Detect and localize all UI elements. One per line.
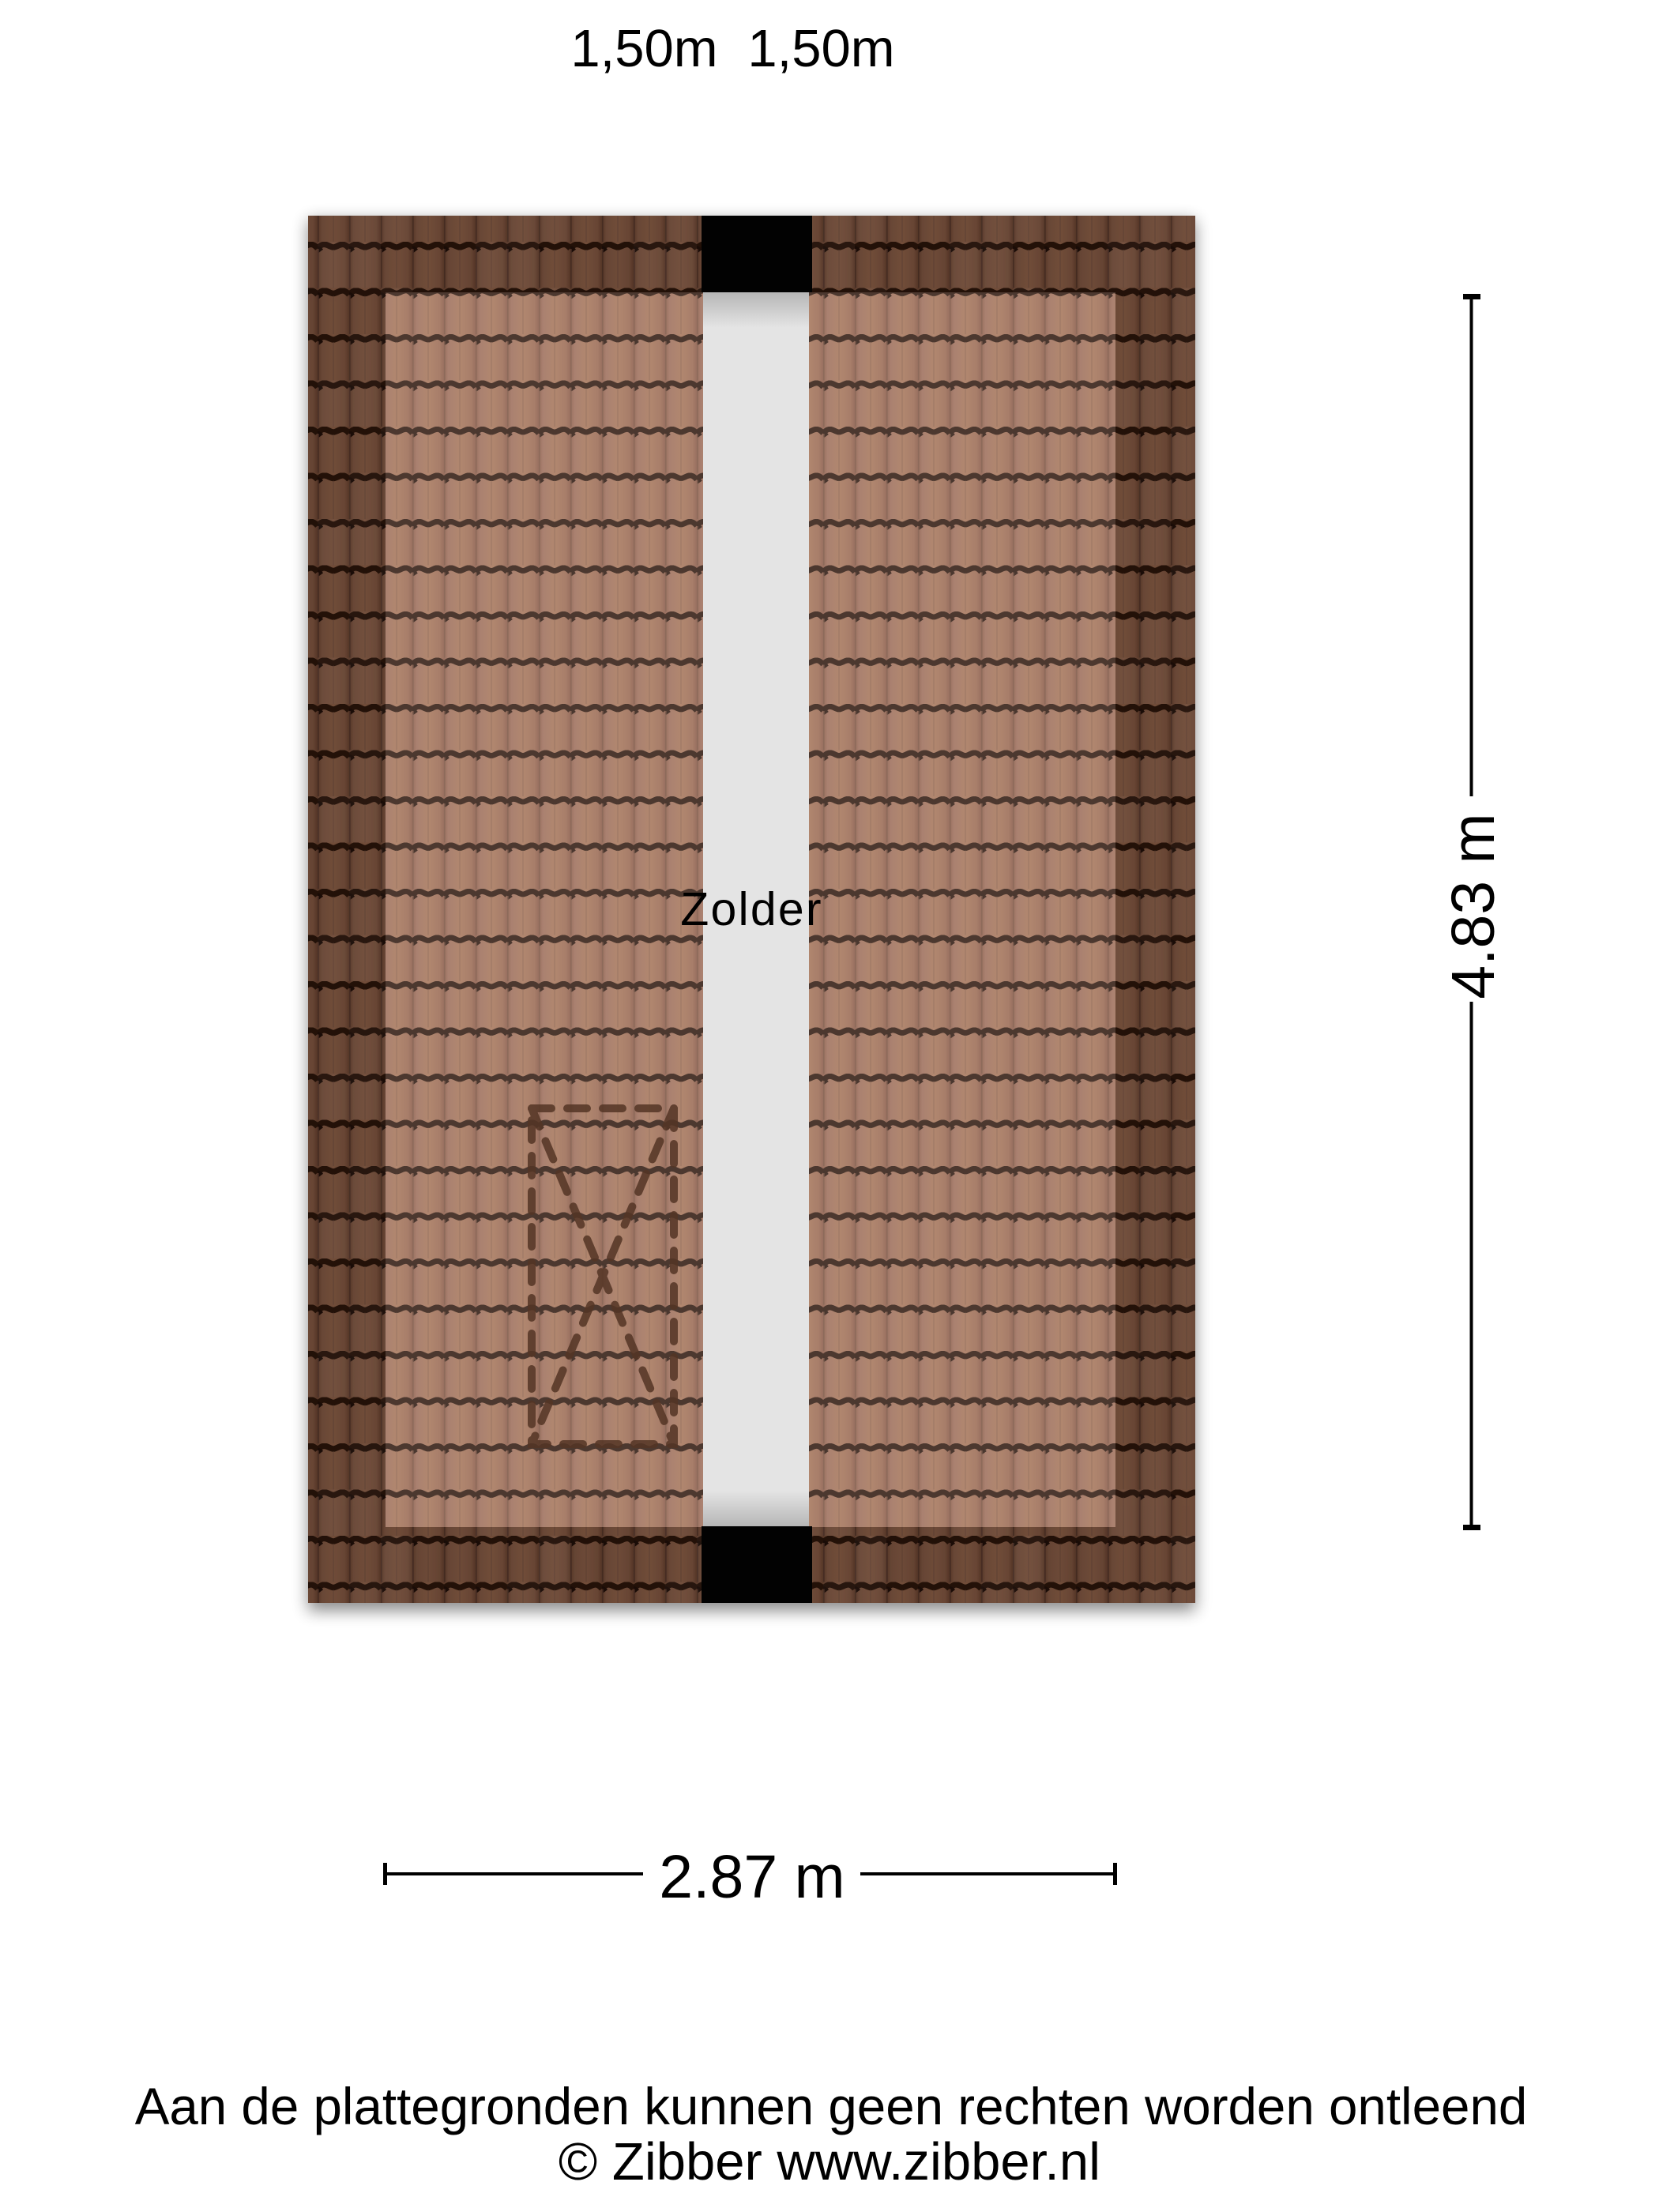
- svg-text:2.87 m: 2.87 m: [659, 1843, 845, 1911]
- svg-text:4.83 m: 4.83 m: [1439, 813, 1507, 999]
- svg-text:Aan de plattegronden kunnen ge: Aan de plattegronden kunnen geen rechten…: [135, 2078, 1528, 2135]
- svg-text:1,50m: 1,50m: [570, 19, 717, 78]
- svg-text:Zolder: Zolder: [680, 883, 822, 935]
- svg-text:© Zibber www.zibber.nl: © Zibber www.zibber.nl: [559, 2132, 1100, 2191]
- svg-text:1,50m: 1,50m: [747, 19, 894, 78]
